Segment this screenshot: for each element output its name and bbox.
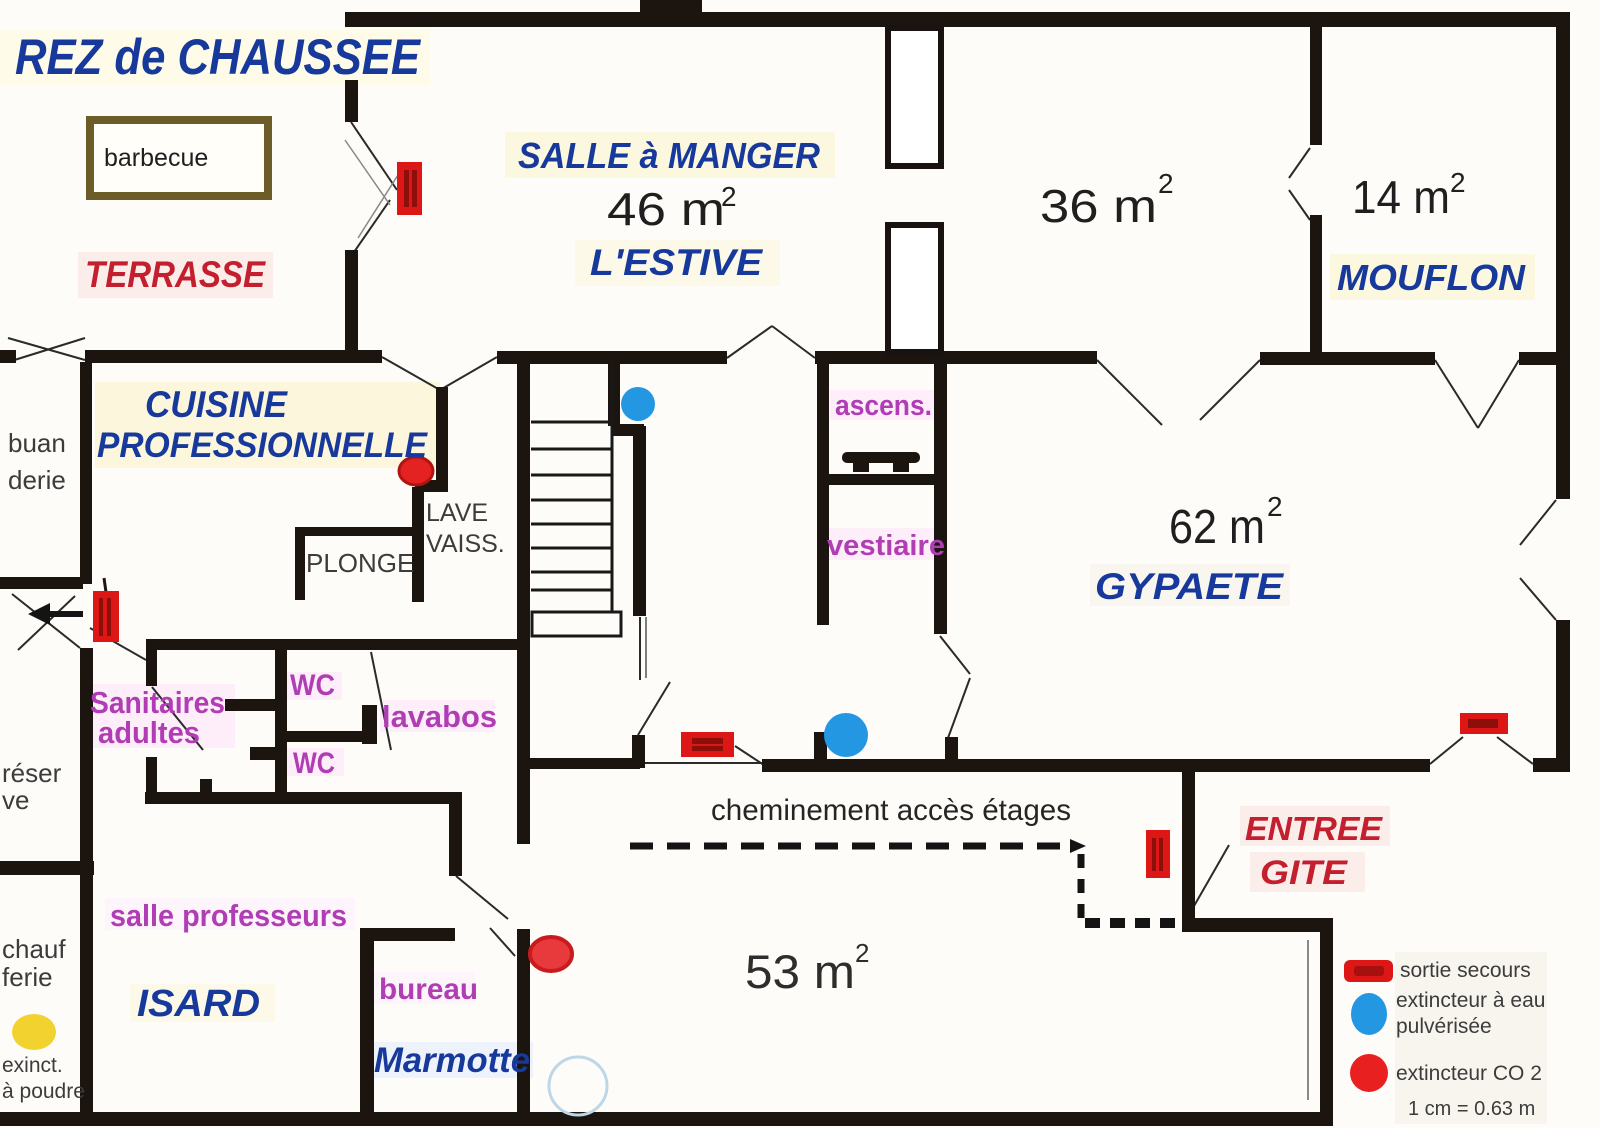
svg-text:ve: ve	[2, 785, 29, 815]
svg-text:barbecue: barbecue	[104, 144, 208, 172]
svg-text:sortie secours: sortie secours	[1400, 959, 1531, 982]
svg-text:2: 2	[721, 181, 737, 212]
svg-text:REZ de CHAUSSEE: REZ de CHAUSSEE	[15, 29, 421, 85]
svg-text:GYPAETE: GYPAETE	[1095, 566, 1284, 607]
svg-text:buan: buan	[8, 428, 66, 458]
svg-text:vestiaire: vestiaire	[827, 530, 945, 562]
svg-text:réser: réser	[2, 758, 62, 788]
svg-text:ISARD: ISARD	[137, 983, 260, 1025]
svg-text:2: 2	[1267, 491, 1283, 522]
svg-text:LAVE: LAVE	[426, 499, 488, 527]
svg-text:adultes: adultes	[98, 715, 200, 750]
svg-text:14 m: 14 m	[1352, 171, 1450, 223]
svg-text:bureau: bureau	[379, 973, 478, 1006]
svg-text:SALLE à MANGER: SALLE à MANGER	[518, 135, 820, 176]
svg-text:36 m: 36 m	[1040, 180, 1157, 232]
svg-text:PLONGE: PLONGE	[306, 548, 414, 578]
svg-text:à poudre: à poudre	[2, 1080, 85, 1103]
svg-text:62 m: 62 m	[1169, 501, 1265, 554]
svg-text:2: 2	[1158, 168, 1174, 199]
svg-text:ENTREE: ENTREE	[1245, 810, 1383, 847]
svg-text:pulvérisée: pulvérisée	[1396, 1015, 1492, 1038]
svg-text:exinct.: exinct.	[2, 1054, 63, 1077]
svg-text:2: 2	[855, 938, 869, 968]
svg-text:TERRASSE: TERRASSE	[85, 254, 266, 295]
svg-text:cheminement accès étages: cheminement accès étages	[711, 794, 1071, 827]
svg-text:2: 2	[1450, 167, 1466, 198]
svg-text:46 m: 46 m	[607, 183, 725, 235]
svg-text:salle professeurs: salle professeurs	[110, 898, 347, 933]
svg-text:MOUFLON: MOUFLON	[1337, 257, 1526, 298]
svg-text:CUISINE: CUISINE	[145, 384, 288, 425]
svg-text:PROFESSIONNELLE: PROFESSIONNELLE	[97, 426, 429, 465]
svg-text:GITE: GITE	[1260, 854, 1348, 892]
svg-text:derie: derie	[8, 465, 66, 495]
svg-text:chauf: chauf	[2, 934, 66, 964]
svg-text:ferie: ferie	[2, 962, 53, 992]
svg-text:VAISS.: VAISS.	[426, 530, 505, 558]
svg-text:WC: WC	[290, 669, 335, 702]
svg-text:ascens.: ascens.	[835, 390, 932, 422]
svg-text:lavabos: lavabos	[382, 699, 497, 734]
svg-text:53 m: 53 m	[745, 945, 855, 998]
svg-text:WC: WC	[293, 747, 335, 780]
svg-text:L'ESTIVE: L'ESTIVE	[590, 242, 763, 283]
svg-text:Marmotte: Marmotte	[374, 1041, 530, 1080]
svg-text:extincteur à eau: extincteur à eau	[1396, 989, 1545, 1012]
svg-text:extincteur CO 2: extincteur CO 2	[1396, 1062, 1542, 1085]
svg-text:1 cm = 0.63 m: 1 cm = 0.63 m	[1408, 1098, 1535, 1120]
